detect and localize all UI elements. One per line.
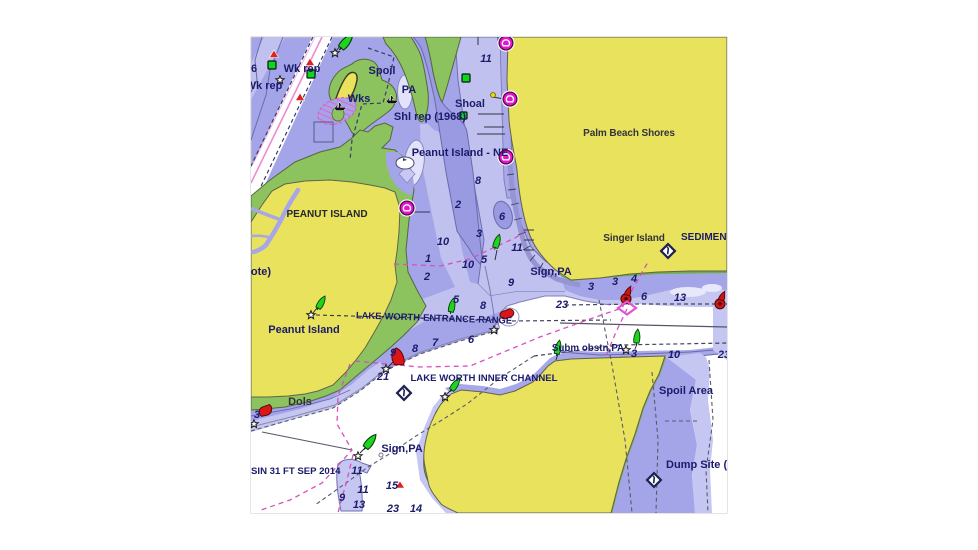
svg-text:2: 2 <box>423 271 430 283</box>
svg-text:PEANUT ISLAND: PEANUT ISLAND <box>286 209 367 220</box>
svg-text:Wk rep: Wk rep <box>246 80 283 92</box>
svg-text:3: 3 <box>588 281 594 293</box>
svg-text:10: 10 <box>668 349 681 361</box>
svg-text:23: 23 <box>555 299 568 311</box>
svg-text:3: 3 <box>476 228 482 240</box>
svg-text:8: 8 <box>480 300 487 312</box>
svg-text:ote): ote) <box>251 266 272 278</box>
svg-text:SEDIMENT: SEDIMENT <box>681 232 733 243</box>
svg-text:6: 6 <box>641 291 648 303</box>
svg-text:Shoal: Shoal <box>455 98 485 110</box>
svg-text:Spoil Area: Spoil Area <box>659 385 714 397</box>
svg-text:4: 4 <box>630 273 637 285</box>
svg-text:9: 9 <box>339 492 346 504</box>
svg-text:8: 8 <box>412 343 419 355</box>
svg-text:3: 3 <box>612 276 618 288</box>
svg-text:Dols: Dols <box>288 396 312 408</box>
svg-text:5: 5 <box>453 294 460 306</box>
svg-text:2: 2 <box>454 199 461 211</box>
svg-text:11: 11 <box>351 465 362 477</box>
svg-text:8: 8 <box>475 175 482 187</box>
svg-text:6: 6 <box>468 334 475 346</box>
svg-text:21: 21 <box>376 371 389 383</box>
svg-text:6: 6 <box>251 63 257 75</box>
svg-text:10: 10 <box>462 259 475 271</box>
svg-text:Sign,PA: Sign,PA <box>381 443 422 455</box>
svg-text:11: 11 <box>357 484 368 496</box>
svg-text:SIN 31 FT SEP 2014: SIN 31 FT SEP 2014 <box>251 466 341 477</box>
svg-text:11: 11 <box>480 53 491 65</box>
svg-text:LAKE WORTH INNER CHANNEL: LAKE WORTH INNER CHANNEL <box>410 373 557 384</box>
svg-text:13: 13 <box>353 499 365 511</box>
svg-text:Spoil: Spoil <box>369 65 396 77</box>
svg-text:15: 15 <box>386 480 399 492</box>
svg-text:Shl rep (1968): Shl rep (1968) <box>394 111 466 123</box>
svg-text:11: 11 <box>511 242 522 254</box>
svg-text:10: 10 <box>437 236 450 248</box>
svg-text:Sign,PA: Sign,PA <box>530 266 571 278</box>
svg-text:7: 7 <box>432 337 439 349</box>
svg-text:6: 6 <box>499 211 506 223</box>
svg-text:1: 1 <box>425 253 431 265</box>
svg-text:Subm obstn,PA: Subm obstn,PA <box>552 343 624 354</box>
svg-text:5: 5 <box>481 254 488 266</box>
svg-text:Palm Beach Shores: Palm Beach Shores <box>583 128 675 139</box>
svg-text:13: 13 <box>674 292 686 304</box>
svg-text:Wk rep: Wk rep <box>284 63 321 75</box>
svg-text:Dump Site (di: Dump Site (di <box>666 459 737 471</box>
svg-text:Peanut Island - NE: Peanut Island - NE <box>412 147 509 159</box>
svg-text:23: 23 <box>717 349 730 361</box>
svg-text:Peanut Island: Peanut Island <box>268 324 340 336</box>
svg-text:9: 9 <box>390 347 397 359</box>
svg-text:3: 3 <box>254 409 260 421</box>
svg-text:Singer Island: Singer Island <box>603 233 665 244</box>
svg-text:Wks: Wks <box>348 93 371 105</box>
svg-text:PA: PA <box>402 84 417 96</box>
svg-text:3: 3 <box>631 348 637 360</box>
svg-text:9: 9 <box>508 277 515 289</box>
